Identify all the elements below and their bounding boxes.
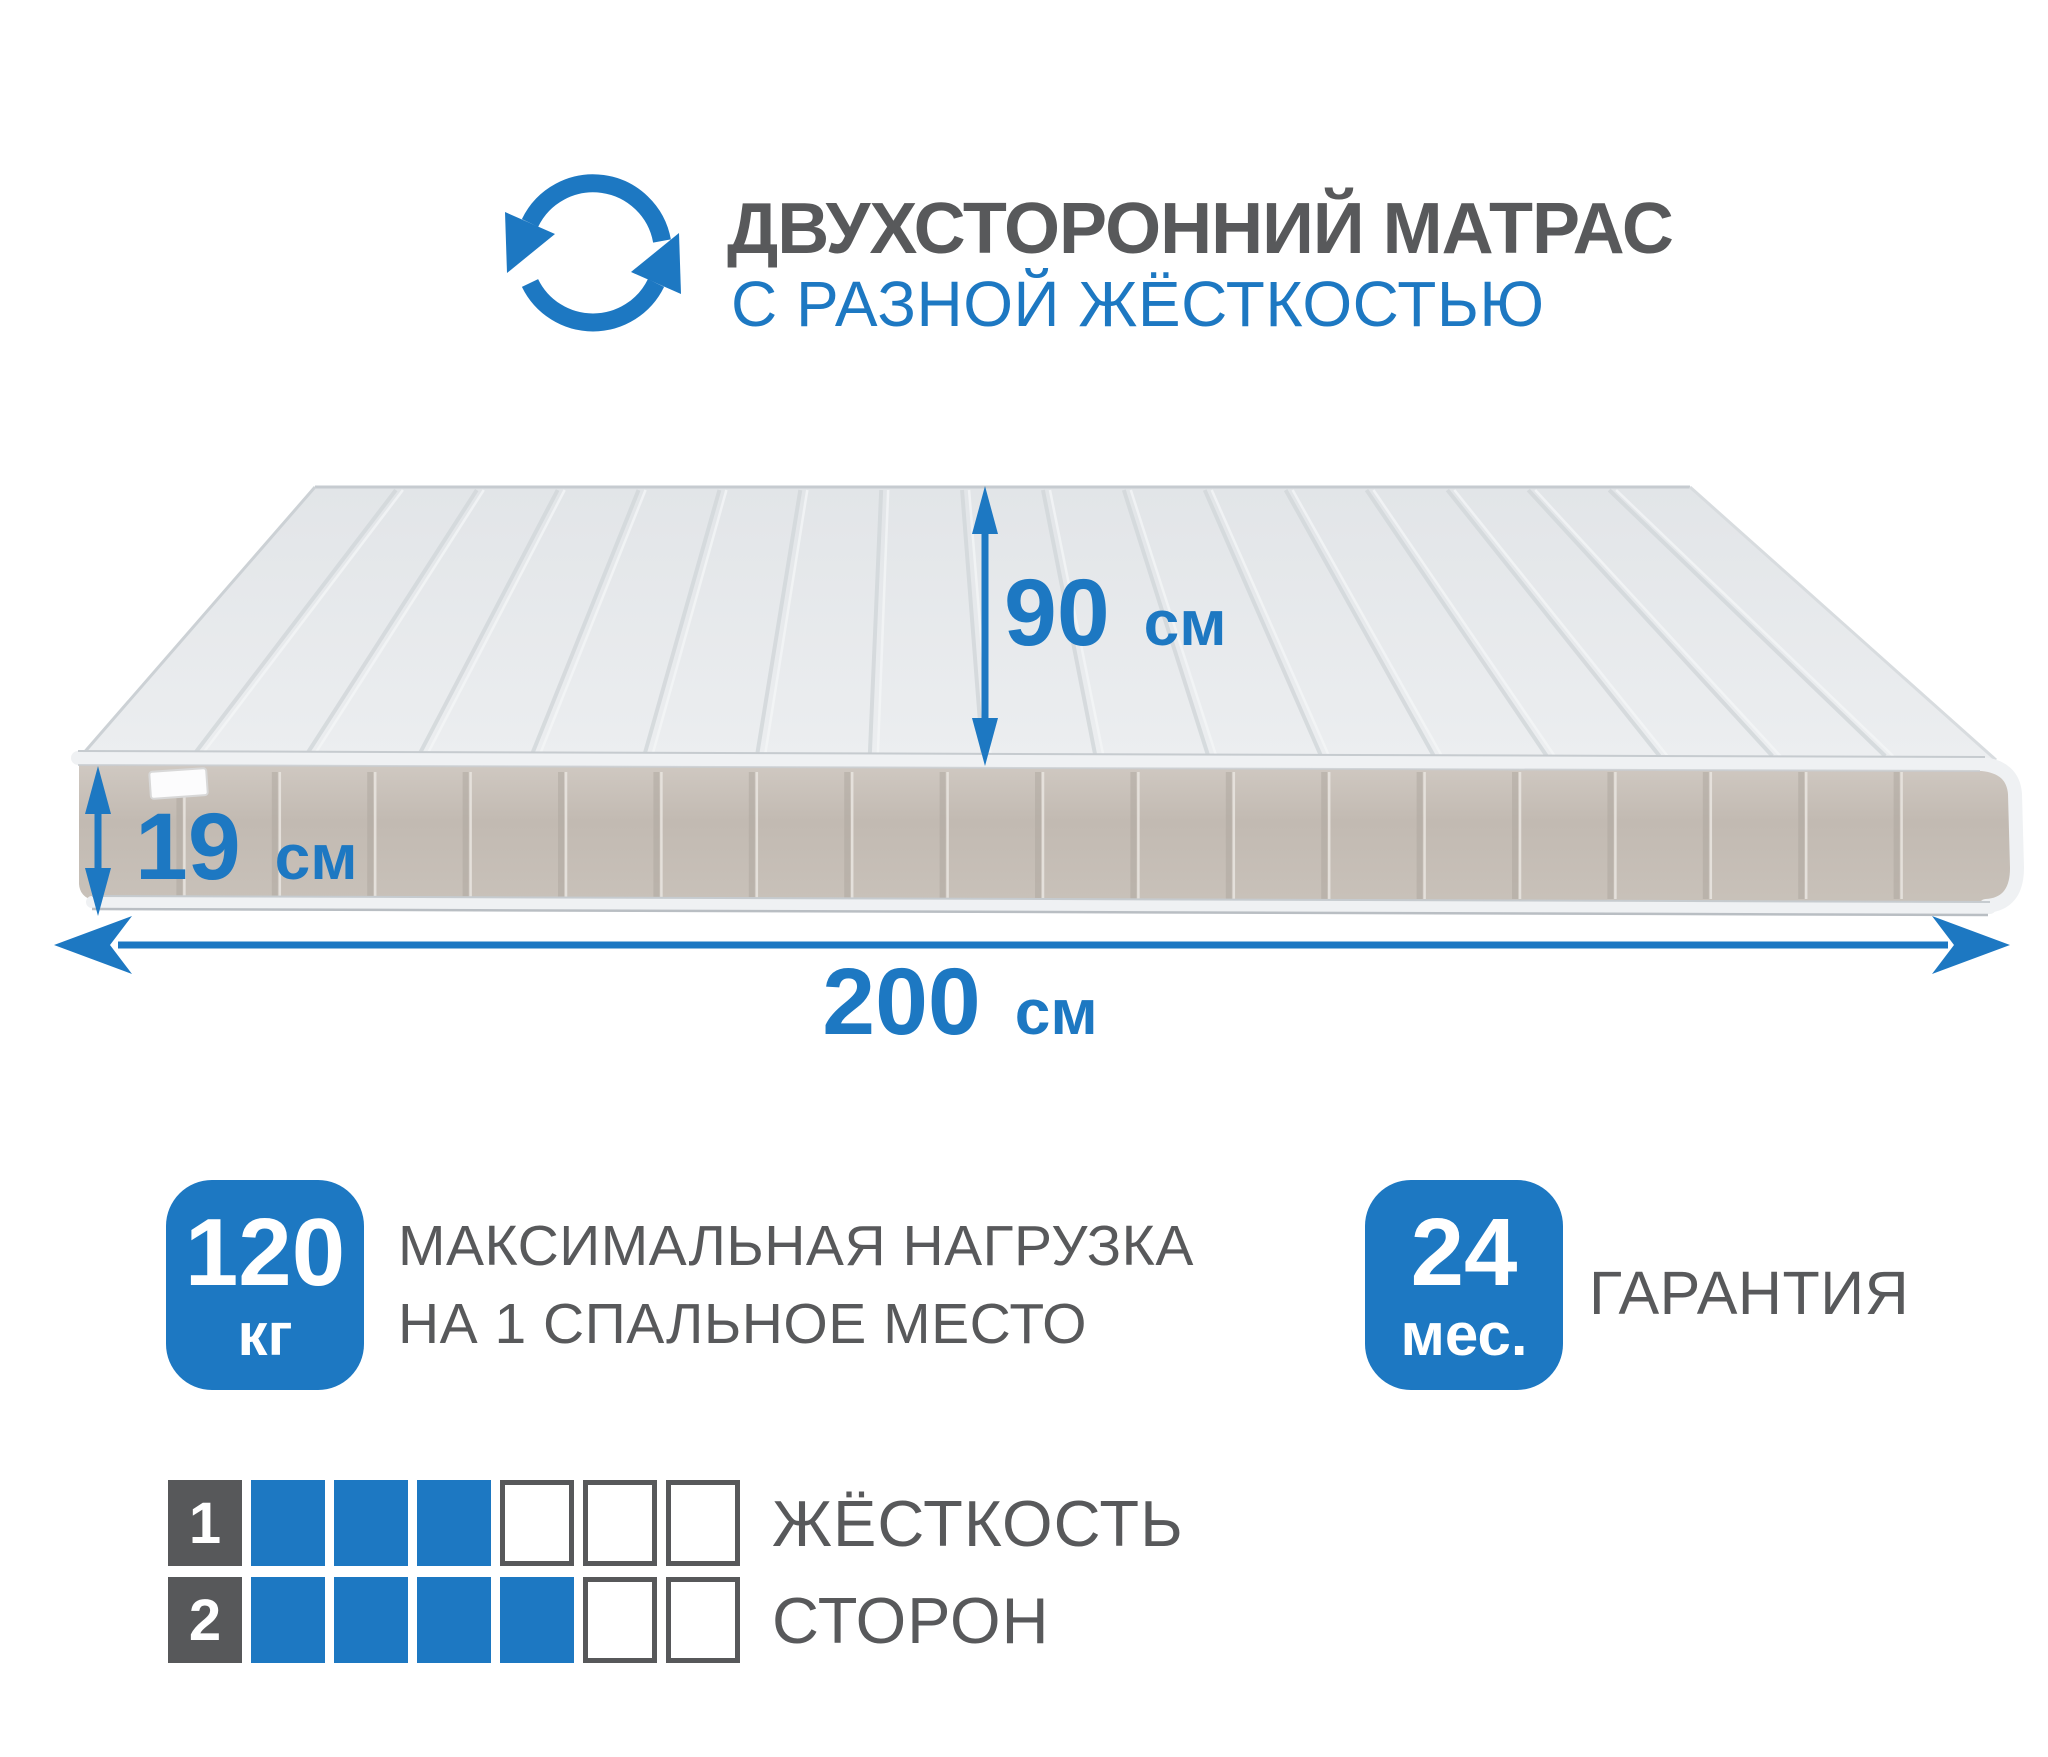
warranty-label: ГАРАНТИЯ	[1589, 1262, 1909, 1324]
firmness-cell	[417, 1480, 491, 1566]
max-load-label-line1: МАКСИМАЛЬНАЯ НАГРУЗКА	[398, 1207, 1194, 1285]
rotate-arrows-icon	[505, 183, 681, 322]
bottom-piping	[92, 902, 1990, 908]
max-load-unit: кг	[237, 1305, 292, 1365]
length-value: 200	[822, 955, 981, 1050]
firmness-scale-label-line1: ЖЁСТКОСТЬ	[772, 1480, 1184, 1566]
length-dimension-label: 200 см	[600, 955, 1320, 1050]
side-number-cell: 1	[168, 1480, 242, 1566]
firmness-cell	[500, 1480, 574, 1566]
max-load-badge: 120 кг	[166, 1180, 364, 1390]
page-title: ДВУХСТОРОННИЙ МАТРАС	[727, 193, 1673, 265]
firmness-scale-row-1: 1	[168, 1480, 740, 1566]
width-value: 90	[1004, 566, 1110, 661]
firmness-cell	[417, 1577, 491, 1663]
mattress-infographic: ДВУХСТОРОННИЙ МАТРАС С РАЗНОЙ ЖЁСТКОСТЬЮ…	[0, 0, 2048, 1757]
max-load-label-line2: НА 1 СПАЛЬНОЕ МЕСТО	[398, 1285, 1194, 1363]
warranty-unit: мес.	[1400, 1305, 1527, 1365]
max-load-label: МАКСИМАЛЬНАЯ НАГРУЗКА НА 1 СПАЛЬНОЕ МЕСТ…	[398, 1207, 1194, 1363]
firmness-cell	[583, 1480, 657, 1566]
firmness-cell	[666, 1480, 740, 1566]
firmness-cell	[334, 1480, 408, 1566]
firmness-scale-label-line2: СТОРОН	[772, 1577, 1050, 1663]
height-value: 19	[135, 800, 241, 895]
width-unit: см	[1144, 591, 1227, 655]
firmness-cell	[666, 1577, 740, 1663]
width-dimension-label: 90 см	[1004, 566, 1227, 661]
firmness-cell	[583, 1577, 657, 1663]
length-unit: см	[1015, 980, 1098, 1044]
firmness-cell	[251, 1480, 325, 1566]
max-load-value: 120	[185, 1205, 345, 1301]
firmness-cell	[334, 1577, 408, 1663]
height-unit: см	[275, 825, 358, 889]
mattress	[78, 487, 2018, 915]
page-subtitle: С РАЗНОЙ ЖЁСТКОСТЬЮ	[731, 272, 1545, 336]
firmness-scale-row-2: 2	[168, 1577, 740, 1663]
firmness-cell	[251, 1577, 325, 1663]
warranty-badge: 24 мес.	[1365, 1180, 1563, 1390]
warranty-value: 24	[1411, 1205, 1518, 1301]
side-number-cell: 2	[168, 1577, 242, 1663]
firmness-cell	[500, 1577, 574, 1663]
height-dimension-label: 19 см	[135, 800, 358, 895]
